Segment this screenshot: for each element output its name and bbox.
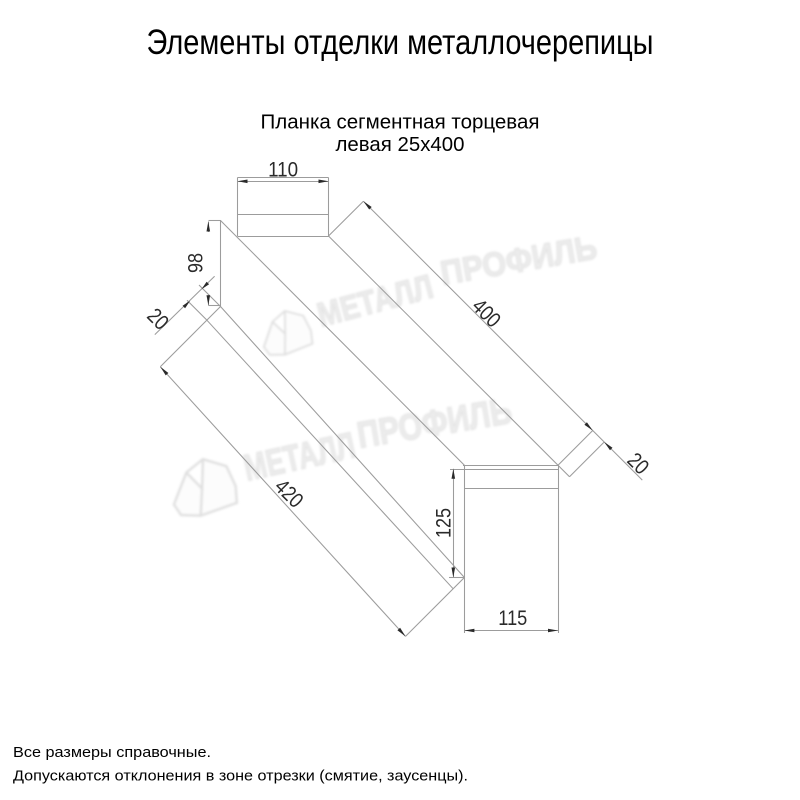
svg-text:левая 25х400: левая 25х400 [336, 133, 465, 156]
svg-text:ПРОФИЛЬ: ПРОФИЛЬ [438, 229, 600, 293]
svg-text:125: 125 [432, 508, 456, 538]
svg-text:МЕТАЛЛ: МЕТАЛЛ [240, 425, 359, 489]
svg-text:Элементы отделки металлочерепи: Элементы отделки металлочерепицы [147, 23, 654, 62]
svg-text:20: 20 [622, 448, 653, 479]
svg-text:Все размеры справочные.: Все размеры справочные. [13, 744, 211, 761]
svg-text:98: 98 [184, 253, 208, 273]
svg-text:МЕТАЛЛ: МЕТАЛЛ [313, 268, 437, 335]
svg-text:ПРОФИЛЬ: ПРОФИЛЬ [354, 390, 515, 456]
svg-text:115: 115 [498, 606, 527, 630]
svg-text:Допускаются отклонения в зоне: Допускаются отклонения в зоне отрезки (с… [13, 767, 468, 784]
svg-text:Планка сегментная торцевая: Планка сегментная торцевая [261, 110, 540, 133]
svg-text:20: 20 [142, 304, 173, 335]
svg-text:400: 400 [467, 294, 505, 332]
svg-text:110: 110 [268, 157, 298, 181]
